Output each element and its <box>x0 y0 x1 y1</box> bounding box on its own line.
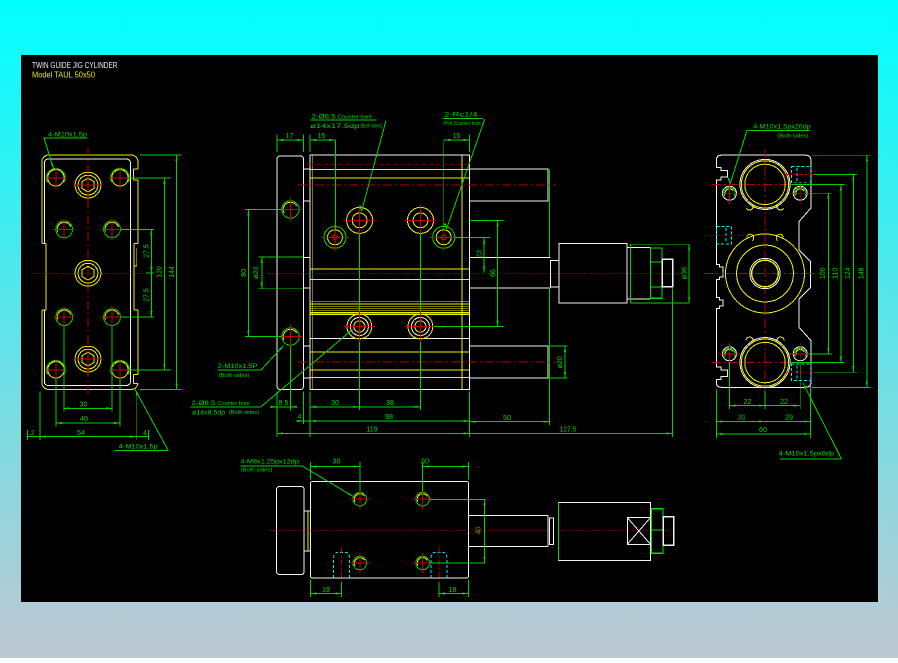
svg-text:40: 40 <box>80 414 88 423</box>
svg-text:15: 15 <box>318 131 326 140</box>
svg-text:30: 30 <box>331 398 339 407</box>
svg-text:ø14x8.5dp: ø14x8.5dp <box>192 409 225 416</box>
svg-text:120: 120 <box>155 266 164 278</box>
svg-text:30: 30 <box>333 456 341 465</box>
svg-text:50: 50 <box>503 413 511 422</box>
svg-text:Counter bore: Counter bore <box>218 401 250 407</box>
svg-text:54: 54 <box>77 428 85 437</box>
svg-text:Port Counter bore: Port Counter bore <box>444 121 481 127</box>
svg-text:8 5: 8 5 <box>279 398 289 407</box>
svg-text:29: 29 <box>785 413 793 422</box>
svg-text:19: 19 <box>322 585 330 594</box>
svg-text:22: 22 <box>780 397 788 406</box>
svg-text:30: 30 <box>80 400 88 409</box>
svg-text:ø20: ø20 <box>251 267 260 280</box>
svg-text:27.5: 27.5 <box>142 288 151 302</box>
svg-text:60: 60 <box>759 425 767 434</box>
svg-text:22: 22 <box>744 397 752 406</box>
svg-text:2-M10x1.5P: 2-M10x1.5P <box>218 363 258 370</box>
svg-text:4-M10x1.5px8dp: 4-M10x1.5px8dp <box>779 451 835 458</box>
svg-text:2-Ø8.5: 2-Ø8.5 <box>191 400 215 407</box>
svg-text:ø20: ø20 <box>555 356 564 369</box>
svg-text:19: 19 <box>449 585 457 594</box>
svg-text:TWIN GUIDE JIG CYLINDER: TWIN GUIDE JIG CYLINDER <box>32 61 118 70</box>
svg-text:98: 98 <box>385 412 393 421</box>
svg-text:4: 4 <box>143 428 147 437</box>
svg-text:(Both sides): (Both sides) <box>240 468 272 474</box>
svg-text:ø14x17.5dp: ø14x17.5dp <box>310 123 359 130</box>
svg-text:4-M10x1.5p: 4-M10x1.5p <box>48 131 87 138</box>
svg-text:40: 40 <box>473 527 482 535</box>
svg-text:66: 66 <box>488 269 497 277</box>
svg-text:Counter bore: Counter bore <box>338 114 373 120</box>
svg-text:(Both sides): (Both sides) <box>229 410 260 416</box>
svg-text:124: 124 <box>843 268 852 280</box>
svg-text:80: 80 <box>239 269 248 277</box>
svg-text:148: 148 <box>856 268 865 280</box>
svg-text:4-M10x1.5p: 4-M10x1.5p <box>119 443 158 450</box>
svg-text:17: 17 <box>286 131 294 140</box>
svg-text:Model TAUL 50x50: Model TAUL 50x50 <box>32 71 96 80</box>
svg-text:4-M8x1.25px12dp.: 4-M8x1.25px12dp. <box>240 458 301 465</box>
svg-text:38: 38 <box>386 398 394 407</box>
svg-text:119: 119 <box>366 425 378 434</box>
svg-text:2-Rc1/4: 2-Rc1/4 <box>444 112 478 119</box>
svg-text:144: 144 <box>167 266 176 278</box>
svg-text:30: 30 <box>421 456 429 465</box>
svg-text:4: 4 <box>298 412 302 421</box>
svg-text:27.5: 27.5 <box>142 244 151 258</box>
svg-text:4-M10x1.5px20dp: 4-M10x1.5px20dp <box>753 123 811 130</box>
svg-text:(Both sides): (Both sides) <box>777 134 808 140</box>
svg-text:ø36: ø36 <box>679 267 688 280</box>
svg-text:23: 23 <box>475 250 484 258</box>
svg-text:2: 2 <box>31 428 35 437</box>
svg-text:2-Ø8.5: 2-Ø8.5 <box>312 113 336 120</box>
svg-text:(Both sides): (Both sides) <box>360 124 382 130</box>
svg-text:(Both sides): (Both sides) <box>219 373 250 379</box>
svg-text:127.5: 127.5 <box>560 425 577 434</box>
svg-text:31: 31 <box>738 413 746 422</box>
svg-text:110: 110 <box>830 268 839 280</box>
svg-text:15: 15 <box>453 131 461 140</box>
svg-text:100: 100 <box>818 268 827 280</box>
